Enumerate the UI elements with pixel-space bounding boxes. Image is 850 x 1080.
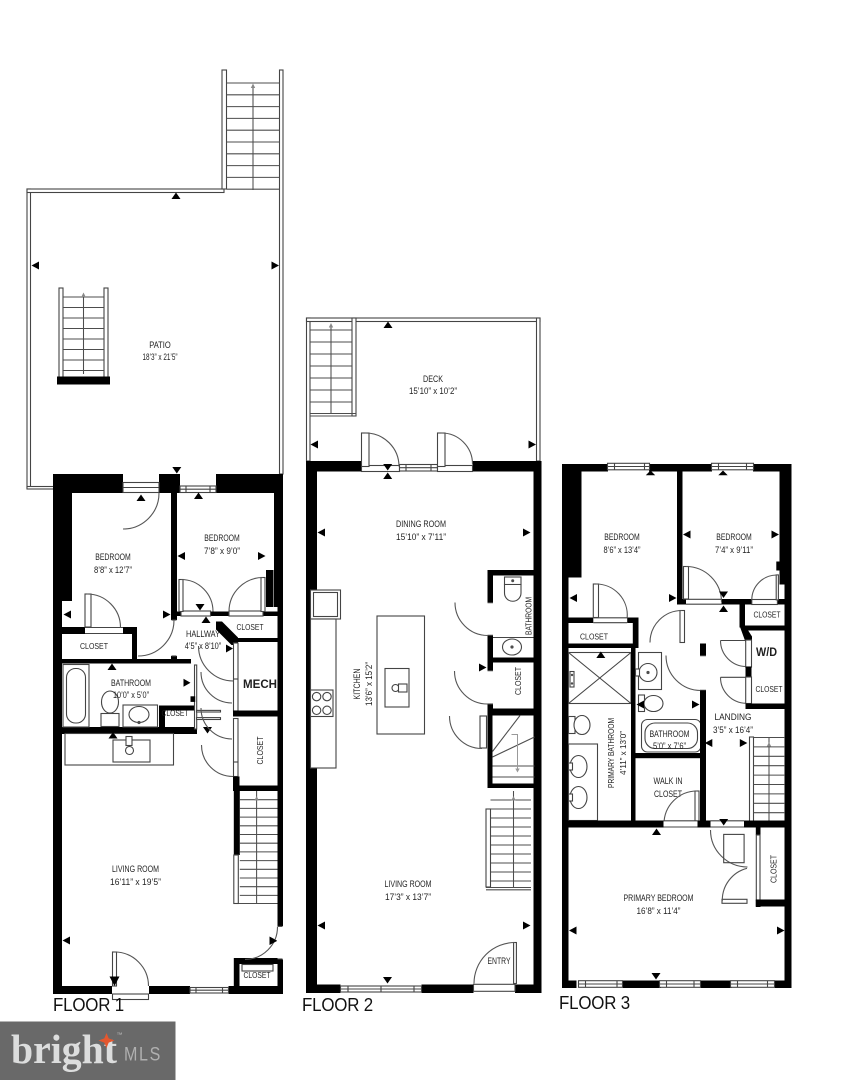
svg-text:16’11” x 19’5”: 16’11” x 19’5” (110, 877, 161, 887)
svg-text:8’6” x 13’4”: 8’6” x 13’4” (604, 545, 641, 555)
svg-text:LIVING ROOM: LIVING ROOM (385, 879, 432, 890)
svg-text:4’5” x 8’10”: 4’5” x 8’10” (185, 641, 222, 651)
svg-text:CLOSET: CLOSET (80, 641, 108, 651)
svg-text:7’8” x 9’0”: 7’8” x 9’0” (204, 546, 240, 556)
svg-text:MLS: MLS (124, 1044, 162, 1066)
svg-text:CLOSET: CLOSET (756, 684, 783, 694)
svg-text:CLOSET: CLOSET (580, 632, 608, 642)
svg-text:WALK IN: WALK IN (654, 776, 683, 787)
svg-text:15’10” x 10’2”: 15’10” x 10’2” (409, 386, 457, 396)
svg-text:ENTRY: ENTRY (488, 956, 511, 966)
svg-text:BEDROOM: BEDROOM (604, 532, 640, 543)
svg-text:PRIMARY BATHROOM: PRIMARY BATHROOM (607, 718, 616, 788)
svg-text:4’11” x 13’0”: 4’11” x 13’0” (619, 731, 628, 775)
svg-text:W/D: W/D (756, 645, 777, 659)
svg-text:bright: bright (11, 1026, 117, 1072)
svg-text:FLOOR 1: FLOOR 1 (53, 995, 124, 1015)
svg-text:BATHROOM: BATHROOM (524, 597, 534, 635)
svg-text:3’5” x 16’4”: 3’5” x 16’4” (713, 725, 753, 735)
svg-text:BEDROOM: BEDROOM (204, 533, 240, 544)
svg-text:KITCHEN: KITCHEN (352, 668, 363, 699)
svg-text:HALLWAY: HALLWAY (186, 629, 221, 640)
svg-text:CLOSET: CLOSET (769, 855, 779, 883)
svg-text:CLOSET: CLOSET (513, 667, 523, 695)
svg-text:BATHROOM: BATHROOM (650, 729, 690, 740)
svg-text:15’10” x 7’11”: 15’10” x 7’11” (396, 532, 446, 542)
svg-text:LIVING ROOM: LIVING ROOM (112, 864, 159, 875)
svg-text:DECK: DECK (423, 374, 443, 384)
svg-text:13’6” x 15’2”: 13’6” x 15’2” (364, 662, 374, 706)
svg-text:™: ™ (117, 1032, 123, 1039)
svg-text:MECH: MECH (243, 677, 277, 691)
svg-text:CLOSET: CLOSET (244, 970, 271, 980)
svg-text:BEDROOM: BEDROOM (95, 552, 131, 563)
svg-text:CLOSET: CLOSET (162, 708, 189, 718)
svg-text:FLOOR 3: FLOOR 3 (559, 993, 630, 1013)
svg-text:8’8” x 12’7”: 8’8” x 12’7” (94, 565, 132, 575)
svg-text:7’4” x 9’11”: 7’4” x 9’11” (715, 545, 753, 555)
svg-text:5’0” x 7’6”: 5’0” x 7’6” (653, 741, 686, 751)
svg-text:DINING ROOM: DINING ROOM (396, 519, 446, 530)
svg-text:16’8” x 11’4”: 16’8” x 11’4” (637, 906, 681, 916)
svg-text:LANDING: LANDING (715, 712, 752, 723)
svg-text:FLOOR 2: FLOOR 2 (302, 995, 373, 1015)
svg-text:BATHROOM: BATHROOM (111, 678, 151, 689)
svg-text:BEDROOM: BEDROOM (716, 532, 752, 543)
svg-text:CLOSET: CLOSET (754, 610, 781, 620)
svg-text:CLOSET: CLOSET (255, 737, 265, 765)
svg-text:CLOSET: CLOSET (237, 622, 264, 632)
svg-text:17’3” x 13’7”: 17’3” x 13’7” (385, 892, 431, 902)
svg-text:10’0” x 5’0”: 10’0” x 5’0” (113, 690, 149, 700)
svg-text:CLOSET: CLOSET (654, 789, 682, 800)
svg-text:PATIO: PATIO (149, 340, 171, 350)
svg-text:PRIMARY BEDROOM: PRIMARY BEDROOM (624, 893, 694, 904)
svg-text:18’3” x 21’5”: 18’3” x 21’5” (143, 352, 178, 362)
